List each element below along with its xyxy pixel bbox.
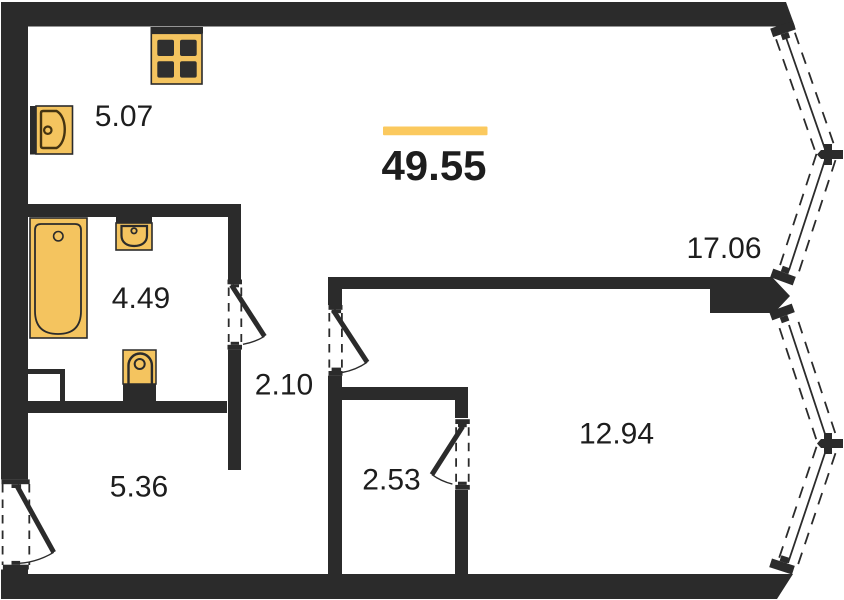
svg-text:2.53: 2.53 (362, 464, 420, 497)
svg-text:5.36: 5.36 (110, 471, 168, 504)
svg-text:2.10: 2.10 (255, 369, 313, 402)
svg-text:5.07: 5.07 (95, 100, 153, 133)
svg-text:17.06: 17.06 (686, 232, 761, 265)
svg-text:49.55: 49.55 (381, 142, 486, 189)
svg-text:12.94: 12.94 (579, 418, 654, 451)
svg-text:4.49: 4.49 (112, 282, 170, 315)
